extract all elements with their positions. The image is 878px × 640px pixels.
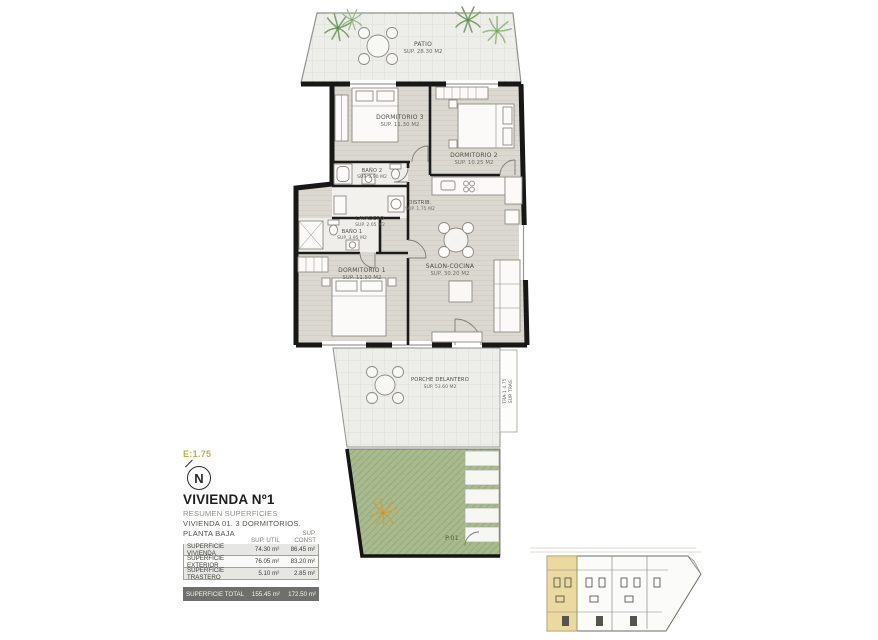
row-util: 76.05 m² bbox=[245, 558, 283, 565]
dorm1-area-label: SUP. 11.50 M2 bbox=[342, 275, 381, 281]
patio-area-label: SUP. 28.30 M2 bbox=[403, 49, 442, 55]
dorm2-label: DORMITORIO 2 bbox=[450, 152, 498, 159]
total-label: SUPERFICIE TOTAL bbox=[183, 591, 245, 598]
porche-area: PORCHE DELANTERO SUP. 53.60 M2 TRA-1 4.7… bbox=[333, 348, 517, 447]
floorplan-drawing: PATIO SUP. 28.30 M2 bbox=[0, 0, 878, 640]
row-const: 2.85 m² bbox=[282, 570, 318, 577]
total-util: 155.45 m² bbox=[245, 591, 283, 598]
lavadero-label: LAVADERO bbox=[356, 216, 385, 222]
scale-label: E:1.75 bbox=[183, 449, 211, 459]
patio-label: PATIO bbox=[414, 41, 432, 48]
row-util: 74.30 m² bbox=[245, 546, 283, 553]
dorm3-area-label: SUP. 11.30 M2 bbox=[380, 122, 419, 128]
dorm3-label: DORMITORIO 3 bbox=[376, 114, 424, 121]
subtitle-resumen: RESUMEN SUPERFICIES bbox=[183, 509, 333, 518]
table-row: SUPERFICIE TRASTERO 5.10 m² 2.85 m² bbox=[183, 568, 319, 580]
porche-area-label: SUP. 53.60 M2 bbox=[424, 384, 457, 390]
trastero-strip-label2: SUP. TRAS. bbox=[508, 379, 514, 404]
garden-slats bbox=[465, 451, 499, 542]
bano2-label: BAÑO 2 bbox=[362, 167, 383, 174]
col-sup-const: SUP. CONST bbox=[283, 530, 319, 544]
page-title: VIVIENDA Nº1 bbox=[183, 492, 333, 507]
salon-label: SALON-COCINA bbox=[426, 263, 475, 270]
total-const: 172.50 m² bbox=[283, 591, 319, 598]
bano2-area-label: SUP. 3.90 M2 bbox=[357, 174, 387, 180]
patio-area: PATIO SUP. 28.30 M2 bbox=[301, 7, 521, 83]
bano1-label: BAÑO 1 bbox=[342, 228, 363, 235]
row-const: 83.20 m² bbox=[282, 558, 318, 565]
row-const: 86.45 m² bbox=[282, 546, 318, 553]
garden-area: P.01 bbox=[347, 449, 500, 556]
row-label: SUPERFICIE TRASTERO bbox=[184, 567, 245, 581]
lavadero-area-label: SUP. 2.05 M2 bbox=[355, 222, 385, 228]
distrib-label: DISTRIB. bbox=[408, 200, 431, 206]
minimap bbox=[530, 548, 701, 631]
trastero-strip-label1: TRA-1 4.75 bbox=[502, 378, 508, 404]
col-sup-util: SUP. UTIL bbox=[245, 537, 283, 544]
floorplan-page: PATIO SUP. 28.30 M2 bbox=[0, 0, 878, 640]
salon-area-label: SUP. 30.20 M2 bbox=[430, 271, 469, 277]
porche-label: PORCHE DELANTERO bbox=[411, 377, 469, 383]
surfaces-table: SUP. UTIL SUP. CONST SUPERFICIE VIVIENDA… bbox=[183, 535, 319, 601]
distrib-area-label: SUP. 1.75 M2 bbox=[405, 206, 435, 212]
building-area: DORMITORIO 3 SUP. 11.30 M2 DORMITORIO 2 … bbox=[296, 80, 528, 349]
dorm2-area-label: SUP. 10.25 M2 bbox=[454, 160, 493, 166]
north-arrow-icon: N bbox=[187, 466, 211, 490]
table-total-row: SUPERFICIE TOTAL 155.45 m² 172.50 m² bbox=[183, 587, 319, 601]
row-util: 5.10 m² bbox=[245, 570, 283, 577]
dorm1-label: DORMITORIO 1 bbox=[338, 267, 386, 274]
parcel-label: P.01 bbox=[445, 534, 459, 542]
subtitle-vivienda: VIVIENDA 01. 3 DORMITORIOS. bbox=[183, 519, 333, 528]
north-letter: N bbox=[194, 471, 203, 486]
bano1-area-label: SUP. 3.95 M2 bbox=[337, 235, 367, 241]
